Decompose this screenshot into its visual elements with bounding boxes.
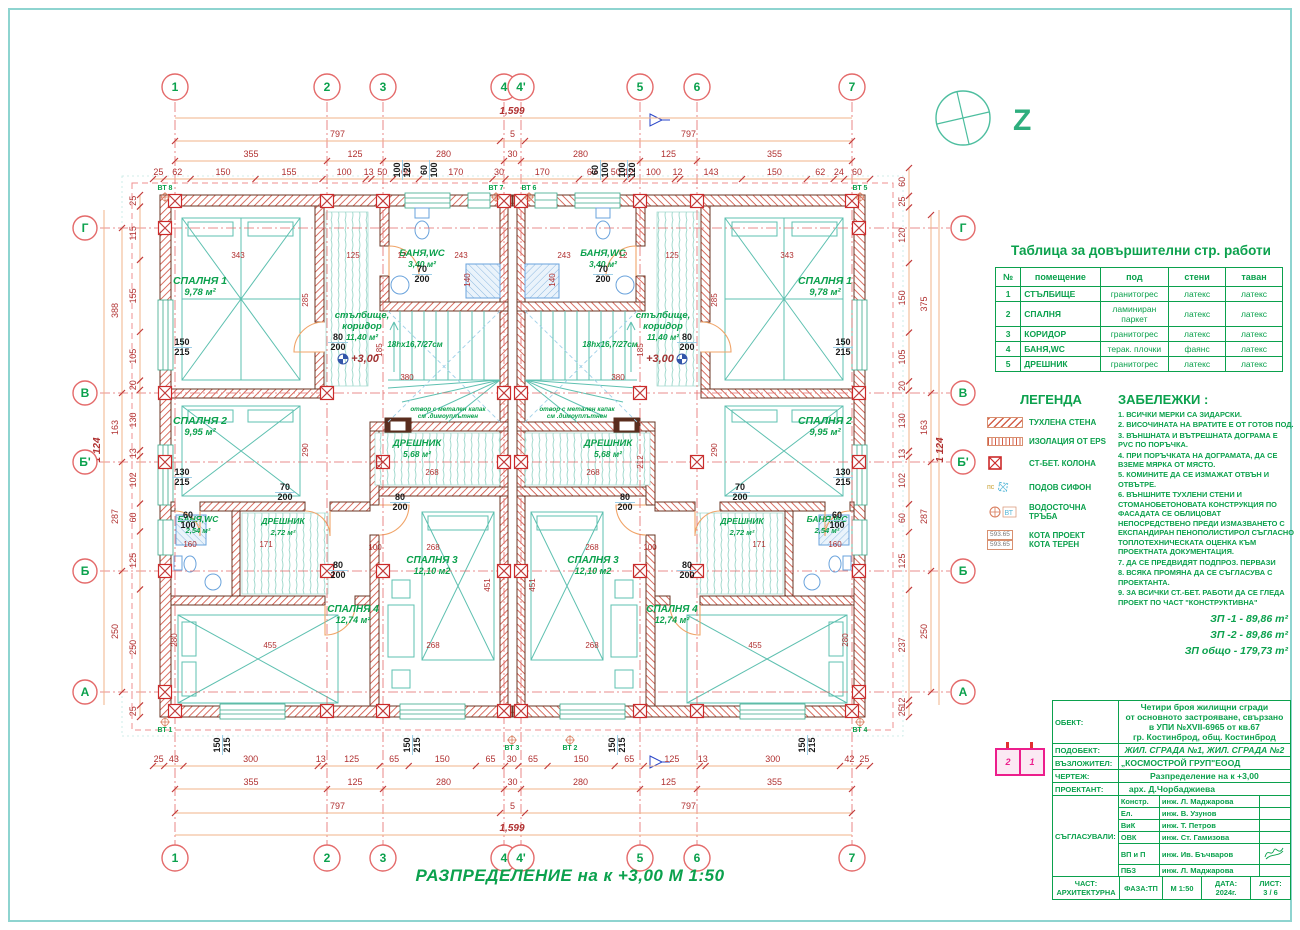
desk — [388, 605, 414, 657]
col-header: под — [1100, 268, 1169, 287]
inner-dimension: 285 — [710, 293, 719, 307]
grid-bubble-label: Б — [959, 564, 968, 578]
dimension-text: 25 — [154, 754, 164, 764]
downpipe-icon: ВТ — [987, 504, 1029, 520]
dimension-text: 375 — [919, 296, 929, 311]
dimension-text: 250 — [110, 624, 120, 639]
key-plan: 2 1 — [995, 748, 1045, 776]
note-item: 7. ДА СЕ ПРЕДВИДЯТ ПОДПРОЗ. ПЕРВАЗИ — [1118, 558, 1294, 567]
key-plan-building-1: 1 — [1021, 748, 1045, 776]
opening-size: 200 — [392, 502, 407, 512]
table-row: 5ДРЕШНИКгранитогреслатекслатекс — [996, 357, 1283, 372]
downpipe-icon — [855, 717, 865, 727]
dimension-text: 100 — [337, 167, 352, 177]
area-total: ЗП общо - 179,73 m² — [1100, 644, 1288, 660]
finish-table-header-row: № помещение под стени таван — [996, 268, 1283, 287]
note-item: 3. ВЪНШНАТА И ВЪТРЕШНАТА ДОГРАМА Е PVC П… — [1118, 431, 1294, 450]
brick-wall-icon — [987, 417, 1029, 428]
inner-dimension: 268 — [586, 468, 600, 477]
opening-size: 130 — [174, 467, 189, 477]
room-area: 12,74 м² — [336, 615, 372, 625]
dimension-text: 155 — [128, 288, 138, 303]
dimension-text: 388 — [110, 303, 120, 318]
table-row: 1СТЪЛБИЩЕгранитогреслатекслатекс — [996, 287, 1283, 302]
grid-bubble-label: 3 — [380, 851, 387, 865]
dimension-text: 355 — [767, 777, 782, 787]
opening-size: 60 — [832, 510, 842, 520]
finish-table-panel: Таблица за довършителни стр. работи № по… — [995, 243, 1287, 372]
grid-bubble-label: 1 — [172, 80, 179, 94]
opening-size: 200 — [679, 342, 694, 352]
dimension-text: 65 — [389, 754, 399, 764]
inner-dimension: 160 — [183, 540, 197, 549]
inner-dimension: 243 — [454, 251, 468, 260]
dimension-text: 13 — [128, 448, 138, 458]
dimension-text: 100 — [646, 167, 661, 177]
inner-dimension: 268 — [426, 641, 440, 650]
room-area: 9,95 м² — [184, 427, 216, 438]
north-arrow: Z — [925, 80, 1045, 163]
dimension-text: 62 — [172, 167, 182, 177]
room-label: СПАЛНЯ 3 — [567, 555, 619, 566]
col-header: таван — [1226, 268, 1283, 287]
bed — [178, 615, 338, 703]
dimension-text: 163 — [919, 420, 929, 435]
grid-bubble-label: 7 — [849, 851, 856, 865]
grid-bubble-label: Б' — [79, 455, 91, 469]
opening-size: 80 — [682, 332, 692, 342]
key-plan-building-2: 2 — [995, 748, 1021, 776]
title-block: ОБЕКТ: Четири броя жилищни сгради от осн… — [1052, 700, 1291, 900]
dimension-text: 125 — [347, 149, 362, 159]
dimension-text: 280 — [573, 149, 588, 159]
downpipe-label: ВТ 1 — [158, 727, 173, 734]
room-label: СПАЛНЯ 1 — [173, 275, 227, 287]
opening-size: 215 — [617, 737, 627, 752]
dimension-text: 797 — [681, 129, 696, 139]
chair — [392, 670, 410, 688]
room-area: 11,40 м² — [346, 332, 379, 342]
bed — [182, 218, 300, 380]
opening-size: 100 — [829, 520, 844, 530]
room-area: 12,74 м² — [655, 615, 691, 625]
window — [158, 520, 173, 555]
downpipe-icon — [507, 735, 517, 745]
dimension-text: 25 — [897, 706, 907, 716]
grid-bubble-label: 4' — [516, 851, 526, 865]
inner-dimension: 212 — [375, 455, 384, 469]
inner-dimension: 185 — [636, 343, 645, 357]
inner-dimension: 280 — [841, 633, 850, 647]
eps-insulation-icon — [987, 437, 1029, 446]
opening-size: 200 — [595, 274, 610, 284]
dimension-text: 20 — [897, 381, 907, 391]
concrete-column-icon — [987, 455, 1029, 471]
inner-dimension: 343 — [780, 251, 794, 260]
opening-size: 100 — [392, 162, 402, 177]
room-area: 2,72 м² — [270, 528, 296, 537]
room-label: ДРЕШНИК — [583, 438, 634, 449]
opening-size: 215 — [174, 477, 189, 487]
finish-table: № помещение под стени таван 1СТЪЛБИЩЕгра… — [995, 267, 1283, 372]
dimension-text: 355 — [767, 149, 782, 159]
stair-note: 18hx16,7/27см — [387, 340, 442, 349]
downpipe-icon — [160, 717, 170, 727]
dimension-total: 1 124 — [935, 437, 946, 462]
window — [158, 445, 173, 505]
dimension-text: 30 — [507, 149, 517, 159]
inner-dimension: 380 — [400, 373, 414, 382]
room-label: СПАЛНЯ 4 — [646, 604, 698, 615]
inner-dimension: 140 — [548, 273, 557, 287]
inner-dimension: 290 — [710, 443, 719, 457]
legend-item: ВТ ВОДОСТОЧНА ТРЪБА — [987, 503, 1115, 521]
dimension-text: 65 — [528, 754, 538, 764]
dimension-text: 30 — [507, 777, 517, 787]
room-label: стълбище, — [335, 310, 390, 321]
opening-size: 200 — [414, 274, 429, 284]
opening-size: 100 — [600, 162, 610, 177]
grid-bubble-label: 4 — [501, 80, 508, 94]
area-zp2: ЗП -2 - 89,86 m² — [1100, 628, 1288, 644]
dimension-text: 60 — [897, 177, 907, 187]
grid-bubble-label: 6 — [694, 80, 701, 94]
note-item: 4. ПРИ ПОРЪЧКАТА НА ДОГРАМАТА, ДА СЕ ВЗЕ… — [1118, 451, 1294, 470]
dimension-text: 60 — [852, 167, 862, 177]
inner-dimension: 125 — [665, 251, 679, 260]
grid-bubble-label: 1 — [172, 851, 179, 865]
grid-bubble-label: 2 — [324, 80, 331, 94]
table-row: 3КОРИДОРгранитогреслатекслатекс — [996, 327, 1283, 342]
dimension-text: 355 — [243, 777, 258, 787]
grid-bubble-label: Г — [82, 221, 89, 235]
grid-bubble-label: 4' — [516, 80, 526, 94]
inner-dimension: 268 — [585, 543, 599, 552]
object-row: ОБЕКТ: Четири броя жилищни сгради от осн… — [1053, 701, 1291, 744]
unit-1-geometry — [158, 193, 512, 719]
dimension-text: 120 — [897, 228, 907, 243]
dimension-text: 43 — [169, 754, 179, 764]
room-label: СПАЛНЯ 2 — [798, 415, 852, 427]
opening-size: 150 — [212, 737, 222, 752]
dimension-text: 20 — [128, 380, 138, 390]
room-label: стълбище, — [636, 310, 691, 321]
dimension-text: 797 — [330, 129, 345, 139]
downpipe-label: ВТ 2 — [563, 745, 578, 752]
inner-dimension: 171 — [259, 540, 273, 549]
inner-dimension: 455 — [748, 641, 762, 650]
downpipe-label: ВТ 5 — [853, 185, 868, 192]
dimension-text: 280 — [436, 777, 451, 787]
chair — [392, 580, 410, 598]
dimension-text: 250 — [128, 640, 138, 655]
room-label: СПАЛНЯ 4 — [327, 604, 379, 615]
inner-dimension: 100 — [368, 543, 382, 552]
opening-size: 215 — [835, 477, 850, 487]
dimension-text: 102 — [128, 472, 138, 487]
inner-dimension: 12 — [619, 251, 628, 260]
room-label: СПАЛНЯ 3 — [406, 555, 458, 566]
opening-size: 215 — [222, 737, 232, 752]
inner-dimension: 268 — [425, 468, 439, 477]
insulation-outline — [132, 183, 893, 730]
dimension-text: 355 — [243, 149, 258, 159]
inner-dimension: 451 — [483, 578, 492, 592]
opening-size: 130 — [835, 467, 850, 477]
dimension-text: 170 — [535, 167, 550, 177]
opening-size: 215 — [835, 347, 850, 357]
opening-size: 100 — [617, 162, 627, 177]
opening-size: 150 — [797, 737, 807, 752]
dimension-text: 797 — [681, 801, 696, 811]
inner-dimension: 455 — [263, 641, 277, 650]
dimension-text: 300 — [765, 754, 780, 764]
inner-dimension: 212 — [636, 455, 645, 469]
inner-dimension: 243 — [557, 251, 571, 260]
opening-size: 80 — [395, 492, 405, 502]
opening-size: 70 — [417, 264, 427, 274]
dimension-text: 125 — [661, 777, 676, 787]
dimension-text: 130 — [897, 413, 907, 428]
section-mark — [650, 114, 670, 126]
opening-size: 80 — [620, 492, 630, 502]
dimension-text: 5 — [510, 129, 515, 139]
subobject-row: ПОДОБЕКТ: ЖИЛ. СГРАДА №1, ЖИЛ. СГРАДА №2 — [1053, 744, 1291, 757]
opening-size: 70 — [598, 264, 608, 274]
dimension-text: 150 — [216, 167, 231, 177]
note-item: 8. ВСЯКА ПРОМЯНА ДА СЕ СЪГЛАСУВА С ПРОЕК… — [1118, 568, 1294, 587]
dimension-text: 125 — [128, 553, 138, 568]
room-label: СПАЛНЯ 1 — [798, 275, 852, 287]
inner-dimension: 160 — [828, 540, 842, 549]
dimension-text: 13 — [364, 167, 374, 177]
col-header: № — [996, 268, 1021, 287]
grid-bubble-label: 3 — [380, 80, 387, 94]
table-row: 2СПАЛНЯламиниран паркетлатекслатекс — [996, 302, 1283, 327]
notes-title: ЗАБЕЛЕЖКИ : — [1118, 392, 1294, 409]
opening-note: отвор с метален капак — [539, 406, 615, 413]
dimension-text: 287 — [110, 509, 120, 524]
note-item: 9. ЗА ВСИЧКИ СТ.-БЕТ. РАБОТИ ДА СЕ ГЛЕДА… — [1118, 588, 1294, 607]
dimension-text: 125 — [344, 754, 359, 764]
stair-note: 18hx16,7/27см — [582, 340, 637, 349]
room-area: 2,72 м² — [729, 528, 755, 537]
opening-size: 100 — [429, 162, 439, 177]
legend-panel: ЛЕГЕНДА ТУХЛЕНА СТЕНА ИЗОЛАЦИЯ ОТ EPS СТ… — [987, 392, 1115, 559]
dimension-text: 25 — [128, 196, 138, 206]
dimension-text: 250 — [919, 624, 929, 639]
opening-size: 70 — [735, 482, 745, 492]
inner-dimension: 268 — [585, 641, 599, 650]
grid-bubble-label: Б — [81, 564, 90, 578]
dimension-text: 105 — [128, 349, 138, 364]
dimension-text: 155 — [281, 167, 296, 177]
inner-dimension: 171 — [752, 540, 766, 549]
dimension-text: 102 — [897, 473, 907, 488]
dimension-text: 150 — [574, 754, 589, 764]
grid-bubble-label: 5 — [637, 851, 644, 865]
room-area: 12,10 м2 — [414, 566, 451, 576]
opening-note: отвор с метален капак — [410, 406, 486, 413]
dimension-text: 797 — [330, 801, 345, 811]
svg-text:ВТ: ВТ — [1005, 510, 1014, 517]
opening-size: 215 — [807, 737, 817, 752]
dimension-text: 237 — [897, 637, 907, 652]
opening-size: 200 — [617, 502, 632, 512]
dimension-text: 50 — [377, 167, 387, 177]
col-header: помещение — [1021, 268, 1100, 287]
dimension-text: 30 — [507, 754, 517, 764]
legend-item: 593.65 593.65 КОТА ПРОЕКТ КОТА ТЕРЕН — [987, 530, 1115, 550]
opening-size: 60 — [419, 165, 429, 175]
built-areas: ЗП -1 - 89,86 m² ЗП -2 - 89,86 m² ЗП общ… — [1100, 612, 1288, 659]
inner-dimension: 12 — [398, 251, 407, 260]
inner-dimension: 280 — [170, 633, 179, 647]
area-zp1: ЗП -1 - 89,86 m² — [1100, 612, 1288, 628]
inner-dimension: 343 — [231, 251, 245, 260]
level-mark: +3,00 — [646, 353, 675, 365]
floor-plan: 1,59979757973551252803028012535525621501… — [70, 50, 980, 880]
grid-bubble-label: Г — [960, 221, 967, 235]
opening-size: 120 — [627, 162, 637, 177]
opening-size: 80 — [333, 332, 343, 342]
grid-bubble-label: 6 — [694, 851, 701, 865]
opening-size: 60 — [183, 510, 193, 520]
drawing-title: РАЗПРЕДЕЛЕНИЕ на к +3,00 М 1:50 — [340, 866, 800, 886]
dimension-text: 143 — [704, 167, 719, 177]
note-item: 1. ВСИЧКИ МЕРКИ СА ЗИДАРСКИ. — [1118, 410, 1294, 419]
dimension-text: 125 — [661, 149, 676, 159]
north-letter: Z — [1013, 104, 1031, 137]
dimension-text: 42 — [844, 754, 854, 764]
dimension-text: 125 — [347, 777, 362, 787]
roof-outline — [122, 176, 903, 736]
room-area: 9,78 м² — [184, 287, 216, 298]
inner-dimension: 285 — [301, 293, 310, 307]
window — [158, 300, 173, 370]
grid-bubble-label: Б' — [957, 455, 969, 469]
dimension-text: 150 — [897, 290, 907, 305]
room-label: СПАЛНЯ 2 — [173, 415, 227, 427]
opening-size: 100 — [180, 520, 195, 530]
finish-table-title: Таблица за довършителни стр. работи — [995, 243, 1287, 258]
level-mark-icon: 593.65 593.65 — [987, 530, 1029, 550]
designer-row: ПРОЕКТАНТ: арх. Д.Чорбаджиева — [1053, 783, 1291, 796]
dimension-text: 130 — [128, 413, 138, 428]
opening-size: 200 — [330, 570, 345, 580]
dimension-text: 25 — [128, 706, 138, 716]
legend-title: ЛЕГЕНДА — [987, 392, 1115, 407]
dimension-text: 30 — [494, 167, 504, 177]
dimension-text: 60 — [128, 512, 138, 522]
room-area: 9,95 м² — [809, 427, 841, 438]
opening-size: 150 — [402, 737, 412, 752]
dimension-text: 25 — [897, 197, 907, 207]
client-row: ВЪЗЛОЖИТЕЛ: „КОСМОСТРОЙ ГРУП"ЕООД — [1053, 757, 1291, 770]
note-item: 5. КОМИНИТЕ ДА СЕ ИЗМАЖАТ ОТВЪН И ОТВЪТР… — [1118, 470, 1294, 489]
dimension-text: 13 — [897, 449, 907, 459]
legend-item: пс ВТ ПОДОВ СИФОН — [987, 480, 1115, 494]
title-block-footer: ЧАСТ:АРХИТЕКТУРНА ФАЗА:ТП М 1:50 ДАТА:20… — [1052, 877, 1291, 900]
dimension-text: 12 — [673, 167, 683, 177]
dimension-text: 12 — [897, 698, 907, 708]
opening-size: 200 — [679, 570, 694, 580]
note-item: 6. ВЪНШНИТЕ ТУХЛЕНИ СТЕНИ И СТОМАНОБЕТОН… — [1118, 490, 1294, 556]
room-label: ДРЕШНИК — [392, 438, 443, 449]
grid-bubble-label: 2 — [324, 851, 331, 865]
dimension-text: 115 — [128, 226, 138, 240]
opening-size: 120 — [402, 162, 412, 177]
opening-note: см .димоуплътнен — [418, 412, 478, 420]
opening-size: 215 — [412, 737, 422, 752]
opening-size: 80 — [682, 560, 692, 570]
signature — [1260, 844, 1291, 865]
inner-dimension: 125 — [346, 251, 360, 260]
dimension-text: 150 — [767, 167, 782, 177]
grid-bubble-label: В — [959, 386, 968, 400]
dimension-text: 13 — [698, 754, 708, 764]
dimension-text: 150 — [435, 754, 450, 764]
inner-dimension: 268 — [426, 543, 440, 552]
dimension-text: 5 — [510, 801, 515, 811]
dimension-text: 60 — [897, 513, 907, 523]
room-area: 9,78 м² — [809, 287, 841, 298]
room-area: 5,68 м² — [403, 449, 432, 459]
room-label: коридор — [342, 321, 382, 332]
grid-bubble-label: А — [81, 685, 90, 699]
inner-dimension: 451 — [528, 578, 537, 592]
downpipe-label: ВТ 6 — [522, 185, 537, 192]
downpipe-label: ВТ 3 — [505, 745, 520, 752]
inner-dimension: 140 — [463, 273, 472, 287]
inner-dimension: 185 — [375, 343, 384, 357]
opening-size: 70 — [280, 482, 290, 492]
dimension-text: 13 — [316, 754, 326, 764]
grid-bubble-label: 7 — [849, 80, 856, 94]
opening-size: 60 — [590, 165, 600, 175]
downpipe-label: ВТ 8 — [158, 185, 173, 192]
room-area: 11,40 м² — [647, 332, 680, 342]
dimension-text: 280 — [573, 777, 588, 787]
dimension-text: 25 — [859, 754, 869, 764]
notes-panel: ЗАБЕЛЕЖКИ : 1. ВСИЧКИ МЕРКИ СА ЗИДАРСКИ.… — [1118, 392, 1294, 608]
dimension-text: 280 — [436, 149, 451, 159]
grid-bubble-label: 5 — [637, 80, 644, 94]
dimension-text: 65 — [485, 754, 495, 764]
inner-dimension: 380 — [611, 373, 625, 382]
grid-bubble-label: А — [959, 685, 968, 699]
drawing-row: ЧЕРТЕЖ: Разпределение на к +3,00 — [1053, 770, 1291, 783]
dimension-text: 25 — [153, 167, 163, 177]
dimension-text: 105 — [897, 349, 907, 364]
table-row: 4БАНЯ,WCтерак. плочкифаянслатекс — [996, 342, 1283, 357]
dimension-total: 1,599 — [499, 106, 524, 117]
opening-size: 200 — [330, 342, 345, 352]
inner-dimension: 100 — [643, 543, 657, 552]
legend-item: ТУХЛЕНА СТЕНА — [987, 417, 1115, 428]
grid-bubble-label: 4 — [501, 851, 508, 865]
window — [220, 704, 285, 719]
opening-size: 215 — [174, 347, 189, 357]
downpipe-label: ВТ 4 — [853, 727, 868, 734]
dimension-text: 125 — [664, 754, 679, 764]
room-area: 12,10 м2 — [575, 566, 612, 576]
dimension-text: 65 — [624, 754, 634, 764]
legend-item: ИЗОЛАЦИЯ ОТ EPS — [987, 437, 1115, 446]
note-item: 2. ВИСОЧИНАТА НА ВРАТИТЕ Е ОТ ГОТОВ ПОД. — [1118, 420, 1294, 429]
legend-item: СТ-БЕТ. КОЛОНА — [987, 455, 1115, 471]
opening-size: 150 — [835, 337, 850, 347]
